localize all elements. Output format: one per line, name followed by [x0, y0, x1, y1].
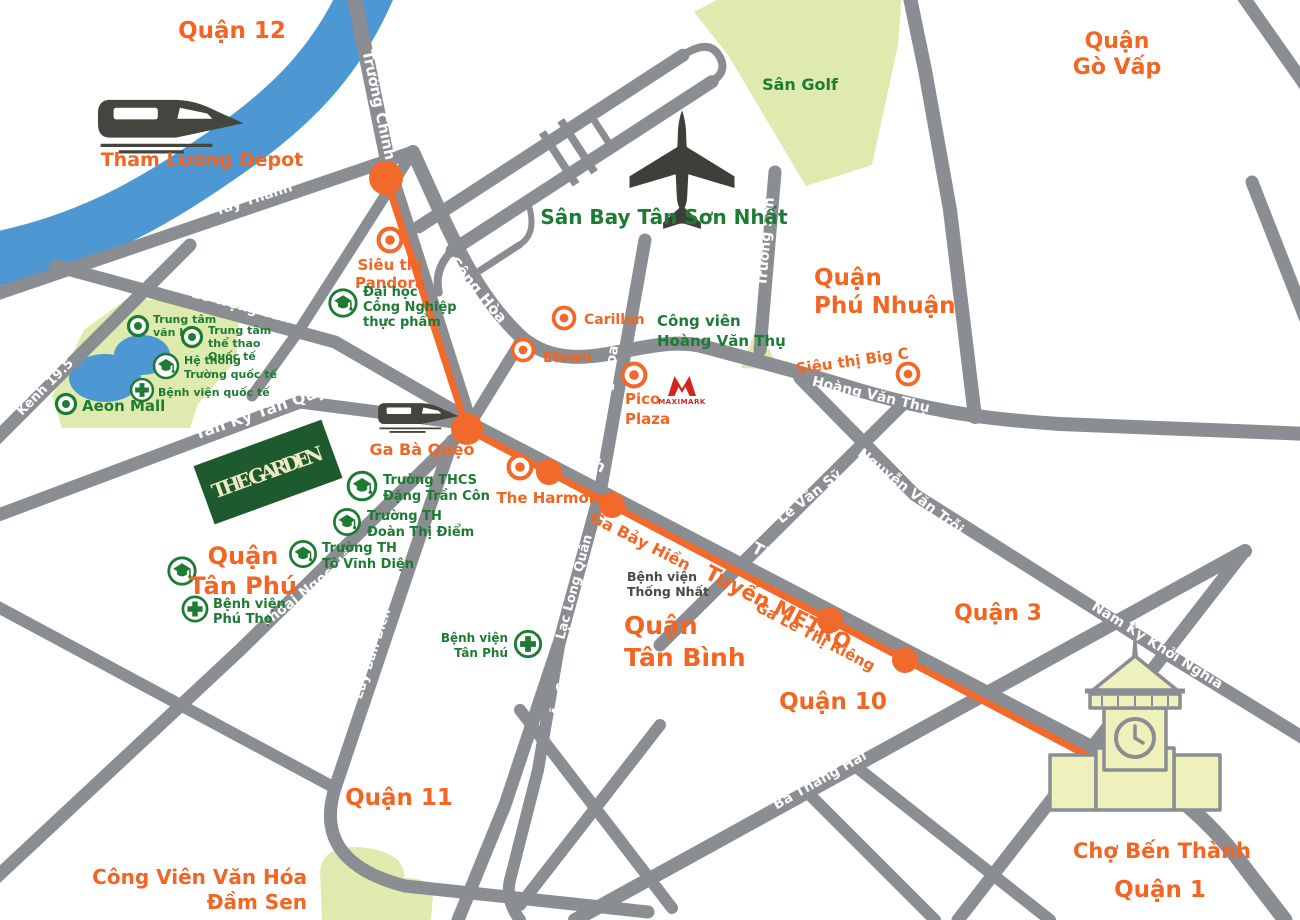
metro-station-dot-tham-luong — [369, 161, 403, 195]
district-label-q1: Quận 1 — [1114, 877, 1206, 903]
doan-thi-diem-label: Trường TH — [367, 509, 442, 524]
district-label-go-vap: Quận — [1085, 29, 1150, 54]
district-label-phu-nhuan: Phú Nhuận — [814, 293, 956, 319]
maximark-label: MAXIMARK — [658, 398, 706, 406]
graduation-cap-icon-truong-quoc-te — [154, 354, 178, 378]
graduation-cap-icon-to-vinh-dien — [290, 541, 315, 566]
orange-circle-marker-icon-pico — [623, 364, 646, 387]
bv-tan-phu-label: Tân Phú — [454, 646, 508, 660]
district-label-q11: Quận 11 — [345, 785, 453, 811]
graduation-cap-icon-thcs — [348, 472, 376, 500]
depot-label: Tham Lương Depot — [101, 149, 304, 171]
bv-quoc-te-label: Bệnh viện quốc tế — [158, 386, 270, 399]
to-vinh-dien-label: Trường TH — [322, 541, 397, 556]
bv-thong-nhat-label: Bệnh viện — [627, 569, 697, 584]
aeon-mall-label: Aeon Mall — [82, 397, 165, 415]
district-label-q10: Quận 10 — [779, 689, 887, 715]
district-label-q3: Quận 3 — [954, 601, 1042, 626]
orange-circle-marker-icon-pandora — [379, 229, 402, 252]
to-vinh-dien-label: Tô Vĩnh Diện — [322, 557, 414, 572]
district-label-phu-nhuan: Quận — [814, 265, 882, 291]
truong-quoc-te-label: Trường quốc tế — [184, 368, 278, 381]
pico-label: Pico — [625, 390, 660, 408]
harmona-label: The Harmona — [496, 489, 609, 507]
pandora-label: Siêu thị — [357, 256, 422, 274]
dai-hoc-label: Công Nghiệp — [363, 300, 457, 315]
district-label-tan-binh: Quận — [624, 611, 698, 640]
dai-hoc-label: thực phẩm — [363, 314, 441, 330]
pico-label: Plaza — [625, 410, 670, 428]
orange-circle-marker-icon-big-c — [898, 364, 919, 385]
carillon-label: Carillon — [584, 312, 645, 328]
ben-thanh-label: Chợ Bến Thành — [1073, 839, 1251, 863]
thcs-label: Trường THCS — [383, 473, 477, 488]
graduation-cap-icon-dai-hoc — [330, 290, 356, 316]
airport-label: Sân Bay Tân Sơn Nhất — [540, 205, 788, 229]
green-circle-marker-icon-the-thao — [183, 328, 202, 347]
etown-label: Etown — [543, 350, 592, 366]
metro-station-dot — [536, 459, 562, 485]
orange-circle-marker-icon-etown — [513, 340, 534, 361]
green-circle-marker-icon-van-hoa — [129, 317, 148, 336]
bv-phu-tho-label: Phú Thọ — [213, 612, 273, 627]
orange-circle-marker-icon-carillon — [554, 308, 575, 329]
bv-tan-phu-label: Bệnh viện — [441, 631, 508, 645]
cv-hvt-label: Công viên — [657, 312, 741, 330]
graduation-cap-icon-doan-thi-diem — [334, 509, 359, 534]
district-label-tan-phu: Tân Phú — [189, 572, 297, 600]
van-hoa-label: Trung tâm — [153, 313, 216, 326]
the-thao-label: thể thao — [208, 337, 261, 350]
dam-sen-label: Công Viên Văn Hóa — [92, 865, 307, 889]
metro-station-dot — [892, 647, 918, 673]
dam-sen-label: Đầm Sen — [207, 890, 307, 914]
the-thao-label: Trung tâm — [208, 324, 271, 337]
dai-hoc-label: Đại học — [363, 285, 418, 300]
district-label-tan-binh: Tân Bình — [624, 643, 746, 672]
district-label-tan-phu: Quận — [208, 542, 279, 570]
medical-cross-icon-phu-tho — [183, 597, 207, 621]
truong-quoc-te-label: Hệ thống — [184, 354, 241, 367]
district-label-go-vap: Gò Vấp — [1073, 55, 1161, 80]
metro-route-map: Trường Chinh Tây Thanh Chế Lan Viên Cộng… — [0, 0, 1300, 920]
station-label-ba-queo: Ga Bà Quẹo — [370, 440, 475, 459]
map-canvas: Trường Chinh Tây Thanh Chế Lan Viên Cộng… — [0, 0, 1300, 920]
golf-label: Sân Golf — [762, 75, 839, 94]
medical-cross-icon-tan-phu — [515, 631, 540, 656]
cv-hvt-label: Hoàng Văn Thụ — [657, 332, 786, 350]
orange-circle-marker-icon-harmona — [509, 456, 532, 479]
doan-thi-diem-label: Đoàn Thị Điểm — [367, 524, 474, 540]
district-label-q12: Quận 12 — [178, 18, 286, 44]
bv-thong-nhat-label: Thống Nhất — [627, 584, 709, 599]
thcs-label: Đặng Trần Côn — [383, 489, 490, 504]
green-circle-marker-icon-aeon — [57, 395, 76, 414]
